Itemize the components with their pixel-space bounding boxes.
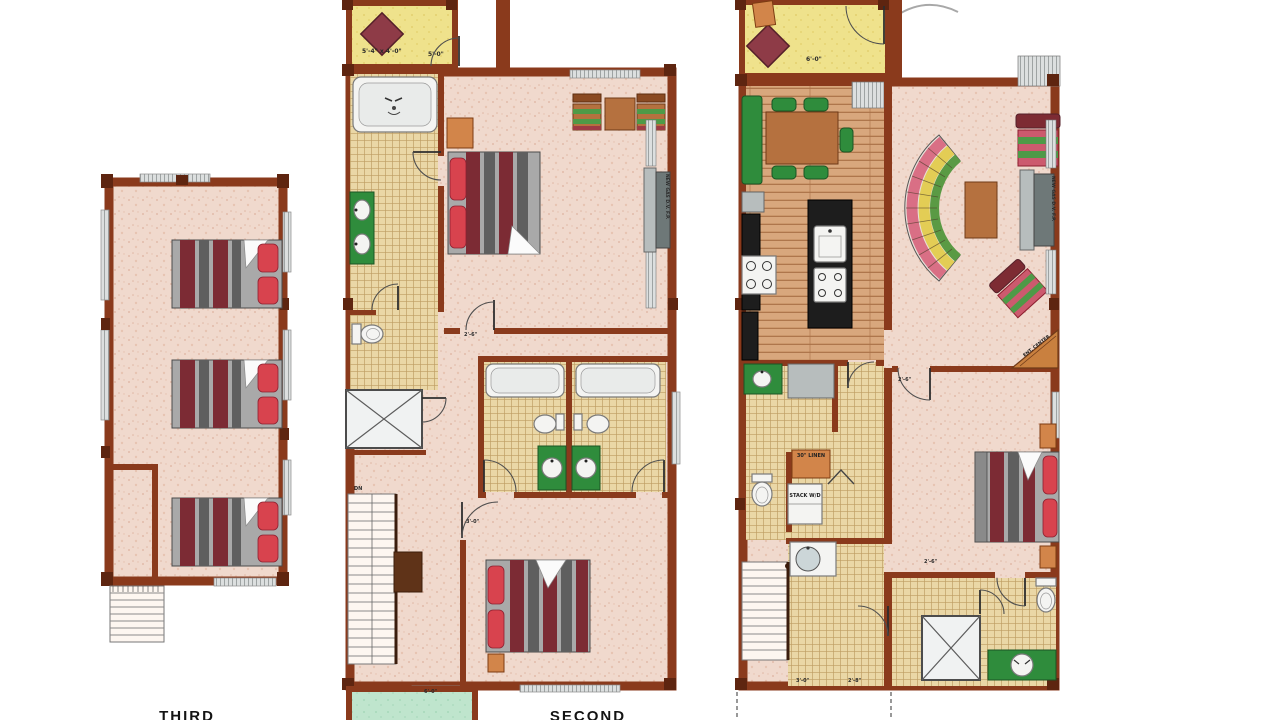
bed: [448, 152, 540, 254]
second-floor-plan: [342, 0, 680, 720]
armchair: [573, 94, 601, 130]
side-table: [605, 98, 635, 130]
sink-vanity: [988, 650, 1056, 680]
wall-column: [888, 0, 902, 78]
bathtub: [576, 364, 660, 397]
dining-bench: [742, 96, 762, 184]
bed: [172, 498, 282, 566]
door-dimension: 2'-6": [898, 378, 911, 383]
bathtub: [486, 364, 564, 397]
deck-door-dimension: 6'-0": [806, 57, 822, 63]
second-floor-label: SECOND: [540, 708, 636, 720]
bed: [172, 240, 282, 308]
toilet: [534, 414, 564, 433]
wall-column: [496, 0, 510, 78]
third-floor-plan: [101, 174, 291, 642]
shower: [346, 390, 422, 448]
toilet: [752, 474, 772, 506]
sink-vanity: [538, 446, 566, 490]
door-dimension: 2'-8": [848, 679, 861, 684]
stairs: [110, 586, 164, 642]
nightstand: [1040, 424, 1056, 448]
bed: [486, 560, 590, 652]
washer-dryer-label: STACK W/D: [788, 494, 822, 500]
bathtub: [353, 77, 437, 132]
roof-line: [896, 5, 958, 16]
stairs-down-label: DN: [354, 487, 362, 492]
counter: [788, 364, 834, 398]
door-dimension: 2'-6": [464, 333, 477, 338]
deck-door-dimension: 5'-0": [428, 52, 444, 58]
linen-closet-label: 30" LINEN: [792, 454, 830, 460]
shower: [922, 616, 980, 680]
stairs: [348, 494, 396, 664]
toilet: [352, 324, 383, 344]
dining-chair: [804, 166, 828, 179]
nightstand: [488, 654, 504, 672]
sink-vanity: [744, 364, 782, 394]
third-floor-label: THIRD: [152, 708, 222, 720]
double-sink-vanity: [350, 192, 374, 264]
door-dimension: 3'-0": [796, 679, 809, 684]
nightstand: [447, 118, 473, 148]
stairs: [742, 562, 791, 660]
dining-chair: [804, 98, 828, 111]
first-floor-plan: [735, 0, 1060, 720]
dining-chair: [772, 166, 796, 179]
dining-chair: [840, 128, 853, 152]
toilet: [1036, 578, 1056, 612]
range-stove: [742, 256, 776, 294]
deck-bench: [752, 1, 775, 28]
chase-closet: [394, 552, 422, 592]
balcony-door-dimension: 6'-0": [424, 690, 437, 695]
fireplace-label: NEW GAS D.V. F.P.: [664, 174, 669, 252]
sink-vanity: [572, 446, 600, 490]
plans-drawing: [0, 0, 1280, 720]
stacked-washer-dryer: [788, 484, 822, 524]
bed: [172, 360, 282, 428]
toilet: [574, 414, 609, 433]
nightstand: [1040, 546, 1056, 568]
floor-plan-sheet: THIRD SECOND 5'-4" x 4'-0" 5'-0" DN NEW …: [0, 0, 1280, 720]
pedestal-sink: [790, 542, 836, 576]
door-dimension: 3'-0": [466, 520, 479, 525]
fireplace-label: NEW GAS D.V. F.P.: [1050, 176, 1055, 252]
kitchen-island: [808, 200, 852, 328]
rear-balcony: [349, 689, 475, 720]
bed: [975, 452, 1059, 542]
door-dimension: 2'-6": [924, 560, 937, 565]
dining-chair: [772, 98, 796, 111]
coffee-table: [965, 182, 997, 238]
deck-dimension: 5'-4" x 4'-0": [362, 49, 402, 55]
